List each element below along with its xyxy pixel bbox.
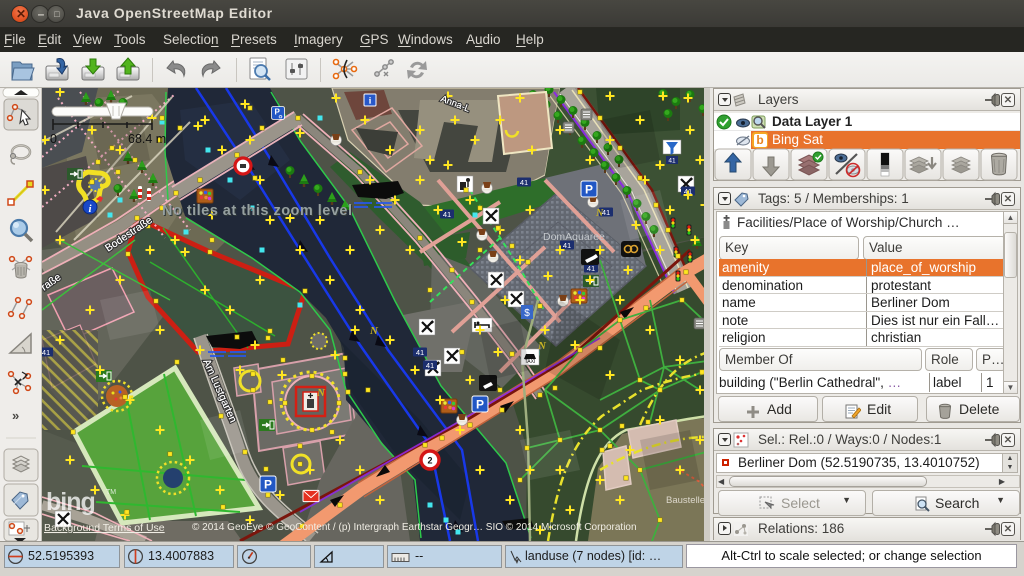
svg-text:»: »: [12, 408, 19, 423]
svg-text:0: 0: [50, 132, 57, 146]
svg-text:♻: ♻: [278, 115, 283, 121]
svg-text:No tiles at this zoom level: No tiles at this zoom level: [162, 203, 352, 219]
svg-text:N: N: [316, 387, 326, 399]
svg-text:N: N: [369, 325, 379, 337]
svg-text:41: 41: [668, 158, 676, 165]
svg-text:DomAquaree: DomAquaree: [543, 231, 605, 243]
svg-text:bing: bing: [46, 488, 95, 516]
svg-text:Baustelle: Baustelle: [666, 495, 705, 506]
svg-text:$: $: [524, 308, 530, 319]
svg-text:N: N: [537, 340, 547, 352]
svg-text:© 2014 GeoEye © GeoContent / (: © 2014 GeoEye © GeoContent / (p) Intergr…: [192, 522, 637, 533]
svg-text:TM: TM: [106, 489, 116, 496]
svg-text:Background Terms of Use: Background Terms of Use: [44, 522, 165, 534]
svg-text:2: 2: [427, 456, 432, 466]
svg-text:68.4 m: 68.4 m: [128, 132, 166, 146]
svg-text:N: N: [595, 208, 604, 219]
